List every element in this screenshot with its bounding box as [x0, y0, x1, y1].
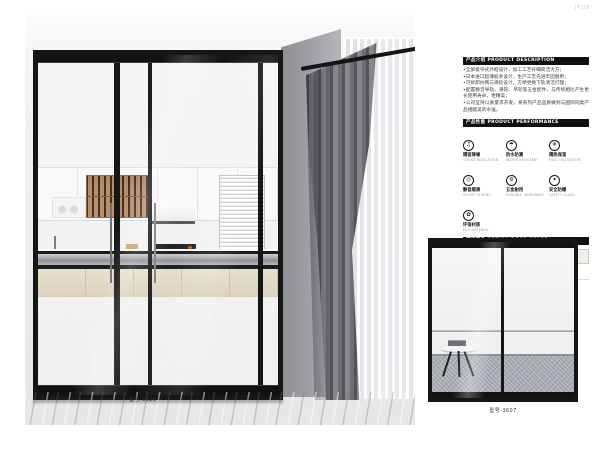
soundproof-icon: ♫: [463, 140, 474, 151]
small-photo-model-label: 型号-3607: [428, 407, 578, 414]
silent-sliding-icon: ◎: [463, 175, 474, 186]
performance-item: ✿ 环保材质 ECO MATERIAL: [463, 201, 503, 232]
performance-sublabel: DURABLE HARDWARE: [506, 193, 546, 197]
performance-item: ❄ 隔热保温 HEAT INSULATION: [549, 131, 589, 162]
door-floor-shadow: [33, 399, 283, 403]
description-bullet: •可拆卸纱网与滑轮设计，方便更换下轨清洁打理；: [463, 81, 589, 88]
section-title-description: 产品介绍 PRODUCT DESCRIPTION: [463, 57, 589, 65]
waterproof-icon: ☂: [506, 140, 517, 151]
performance-grid: ♫ 隔音降噪 SOUND INSULATION ☂ 防水防潮 WATER RES…: [463, 131, 589, 232]
main-photo-model-label: 型号-3620: [129, 396, 156, 403]
eco-material-icon: ✿: [463, 210, 474, 221]
performance-item: ⚙ 五金耐用 DURABLE HARDWARE: [506, 166, 546, 197]
catalog-page: JT/28: [0, 0, 600, 450]
performance-sublabel: WATER RESISTANT: [506, 158, 546, 162]
description-bullet: •配置静音导轨、滑轮、吊轮等五金配件，与传统相比产生更长使用寿命，更精美；: [463, 88, 589, 101]
insulation-icon: ❄: [549, 140, 560, 151]
performance-item: ☂ 防水防潮 WATER RESISTANT: [506, 131, 546, 162]
performance-sublabel: SAFETY GLASS: [549, 193, 589, 197]
performance-sublabel: SOUND INSULATION: [463, 158, 503, 162]
description-bullet: •全屏极窄式外框设计，加工工艺纤细简洁大方；: [463, 68, 589, 75]
performance-item: ◎ 静音顺滑 SILENT SLIDING: [463, 166, 503, 197]
performance-item: ✦ 安全防爆 SAFETY GLASS: [549, 166, 589, 197]
small-door-photo: [428, 238, 578, 402]
description-list: •全屏极窄式外框设计，加工工艺纤细简洁大方； •日本进口超薄胶条设计，生产工艺先…: [463, 68, 589, 114]
sliding-glass-door: [33, 50, 283, 400]
safety-glass-icon: ✦: [549, 175, 560, 186]
description-bullet: •公司坚持以质量求开发，将系列产品品质做到与国际同类产品相媲美的水准。: [463, 101, 589, 114]
performance-item: ♫ 隔音降噪 SOUND INSULATION: [463, 131, 503, 162]
section-title-performance: 产品性能 PRODUCT PERFORMANCE: [463, 119, 589, 127]
main-room-photo: 型号-3620: [25, 15, 415, 425]
small-door-glass-reflection: [432, 242, 574, 398]
page-number: JT/28: [575, 5, 590, 11]
performance-sublabel: HEAT INSULATION: [549, 158, 589, 162]
performance-sublabel: ECO MATERIAL: [463, 228, 503, 232]
performance-sublabel: SILENT SLIDING: [463, 193, 503, 197]
glass-reflection: [38, 55, 278, 395]
hardware-icon: ⚙: [506, 175, 517, 186]
marble-floor: [25, 392, 415, 425]
